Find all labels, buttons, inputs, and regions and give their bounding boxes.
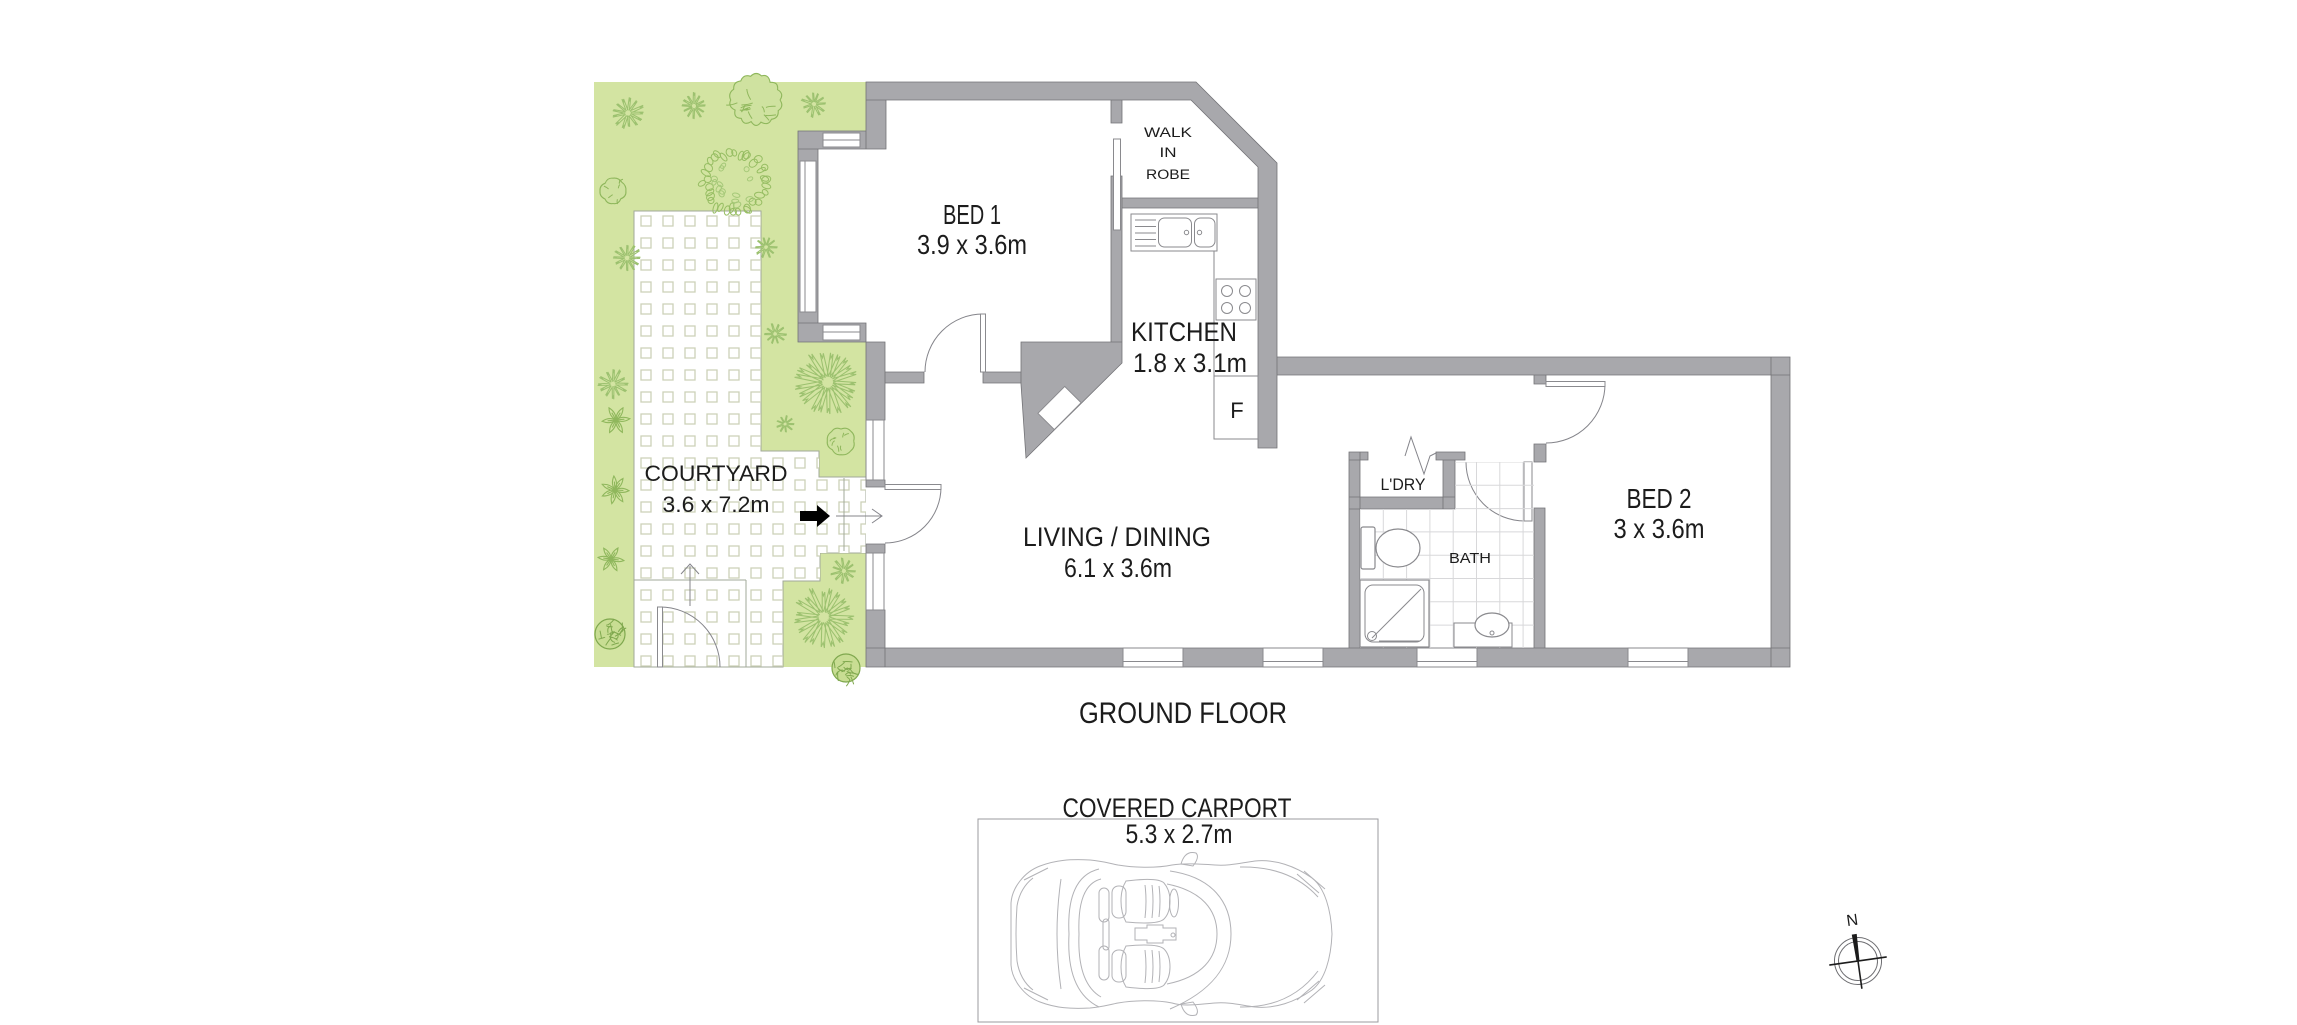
svg-text:3.9 x 3.6m: 3.9 x 3.6m: [917, 229, 1027, 260]
svg-text:F: F: [1230, 398, 1243, 423]
svg-text:GROUND FLOOR: GROUND FLOOR: [1079, 697, 1287, 730]
svg-text:LIVING / DINING: LIVING / DINING: [1023, 522, 1211, 552]
svg-text:BATH: BATH: [1449, 550, 1491, 567]
svg-text:BED 1: BED 1: [943, 199, 1001, 230]
svg-text:5.3 x 2.7m: 5.3 x 2.7m: [1126, 819, 1233, 849]
svg-text:1.8 x 3.1m: 1.8 x 3.1m: [1133, 348, 1247, 378]
svg-text:ROBE: ROBE: [1146, 167, 1190, 182]
svg-text:BED 2: BED 2: [1627, 483, 1692, 514]
svg-text:3 x 3.6m: 3 x 3.6m: [1614, 513, 1705, 544]
svg-text:COURTYARD: COURTYARD: [645, 461, 788, 486]
svg-text:IN: IN: [1160, 145, 1177, 160]
svg-text:WALK: WALK: [1144, 125, 1192, 140]
svg-text:L'DRY: L'DRY: [1381, 475, 1426, 494]
svg-text:3.6 x 7.2m: 3.6 x 7.2m: [663, 492, 770, 517]
svg-text:KITCHEN: KITCHEN: [1131, 317, 1237, 347]
svg-text:6.1 x 3.6m: 6.1 x 3.6m: [1064, 553, 1172, 583]
svg-text:N: N: [1845, 912, 1859, 930]
